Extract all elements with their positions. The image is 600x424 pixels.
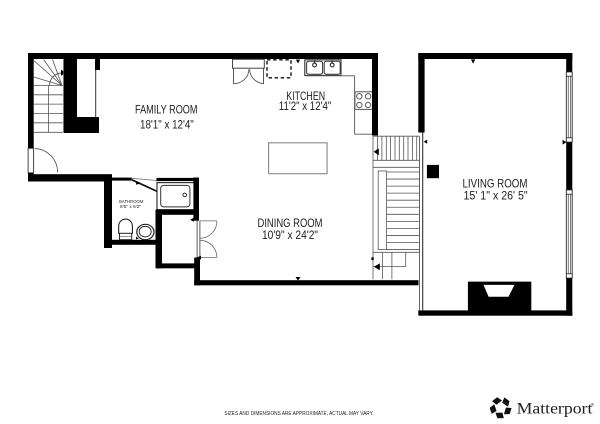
svg-text:LIVING ROOM: LIVING ROOM bbox=[463, 176, 528, 190]
svg-text:DINING ROOM: DINING ROOM bbox=[258, 216, 323, 230]
svg-text:10'9" x 24'2": 10'9" x 24'2" bbox=[262, 230, 318, 242]
svg-text:11'2" x 12'4": 11'2" x 12'4" bbox=[279, 101, 332, 113]
svg-text:BATHROOM: BATHROOM bbox=[119, 199, 143, 204]
svg-text:SIZES AND DIMENSIONS ARE APPRO: SIZES AND DIMENSIONS ARE APPROXIMATE, AC… bbox=[224, 411, 373, 417]
svg-text:FAMILY ROOM: FAMILY ROOM bbox=[135, 103, 198, 117]
svg-text:15' 1" x 26' 5": 15' 1" x 26' 5" bbox=[464, 191, 528, 203]
svg-text:Matterport: Matterport bbox=[517, 400, 594, 417]
svg-text:8'5" x 6'2": 8'5" x 6'2" bbox=[120, 204, 142, 209]
svg-text:18'1" x 12'4": 18'1" x 12'4" bbox=[140, 120, 194, 132]
svg-text:®: ® bbox=[591, 402, 595, 408]
